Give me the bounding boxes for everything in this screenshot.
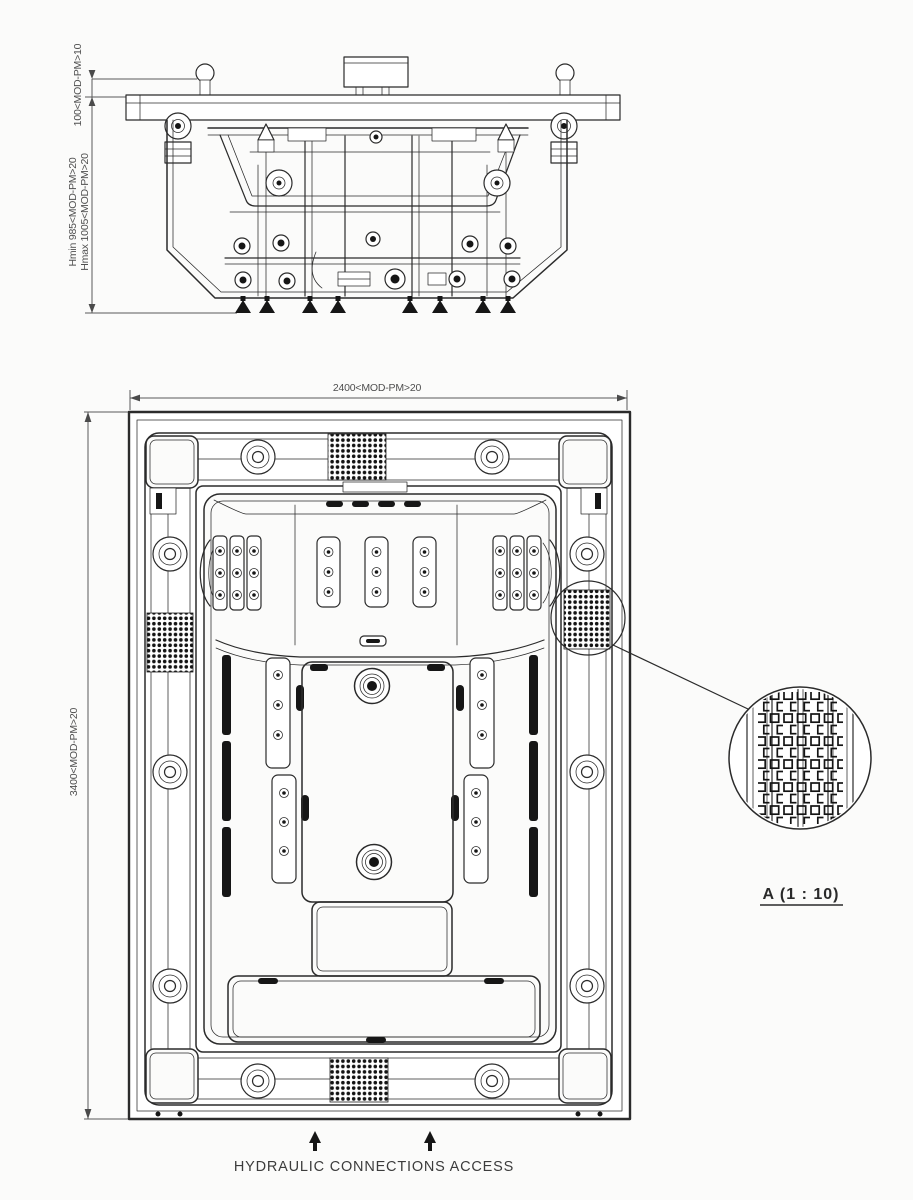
dim-side-hmin: Hmin 985<MOD-PM>20 [67, 157, 79, 266]
drain-lower [357, 845, 392, 880]
detail-grille-pattern [747, 687, 853, 829]
side-elevation-view: 100<MOD-PM>10 Hmin 985<MOD-PM>20 Hmax 10… [67, 43, 620, 313]
grille-right [564, 590, 610, 649]
footer-label: HYDRAULIC CONNECTIONS ACCESS [234, 1159, 514, 1175]
plan-tub [200, 494, 560, 1044]
jet-cluster-left [213, 536, 261, 610]
drain-upper [355, 669, 390, 704]
grille-bottom [330, 1058, 388, 1102]
side-tub-section [208, 124, 528, 206]
side-deck [126, 57, 620, 120]
dimension-side-height: 100<MOD-PM>10 Hmin 985<MOD-PM>20 Hmax 10… [67, 43, 237, 313]
side-control-box [344, 57, 408, 97]
technical-drawing-page: 100<MOD-PM>10 Hmin 985<MOD-PM>20 Hmax 10… [0, 0, 913, 1200]
grille-top [328, 434, 386, 480]
side-plumbing [234, 232, 520, 289]
jet-cluster-right [493, 536, 541, 610]
detail-view-a: A (1 : 10) [729, 687, 871, 905]
arrow-up-left [309, 1131, 321, 1151]
detail-label: A (1 : 10) [763, 886, 840, 903]
dim-side-hmax: Hmax 1005<MOD-PM>20 [79, 153, 91, 271]
plan-view: 2400<MOD-PM>20 3400<MOD-PM>20 [68, 382, 748, 1119]
dim-plan-width: 2400<MOD-PM>20 [333, 382, 422, 394]
grille-left [147, 613, 193, 672]
dimension-plan-width: 2400<MOD-PM>20 [130, 382, 627, 410]
roller-left [165, 113, 191, 139]
dim-side-top-offset: 100<MOD-PM>10 [72, 43, 84, 126]
dim-plan-length: 3400<MOD-PM>20 [68, 708, 80, 797]
spa-technical-drawing: 100<MOD-PM>10 Hmin 985<MOD-PM>20 Hmax 10… [0, 0, 913, 1200]
arrow-up-right [424, 1131, 436, 1151]
roller-right [551, 113, 577, 139]
footer-annotation: HYDRAULIC CONNECTIONS ACCESS [234, 1131, 514, 1175]
jet-bars-middle [317, 537, 436, 607]
dimension-plan-length: 3400<MOD-PM>20 [68, 412, 128, 1119]
